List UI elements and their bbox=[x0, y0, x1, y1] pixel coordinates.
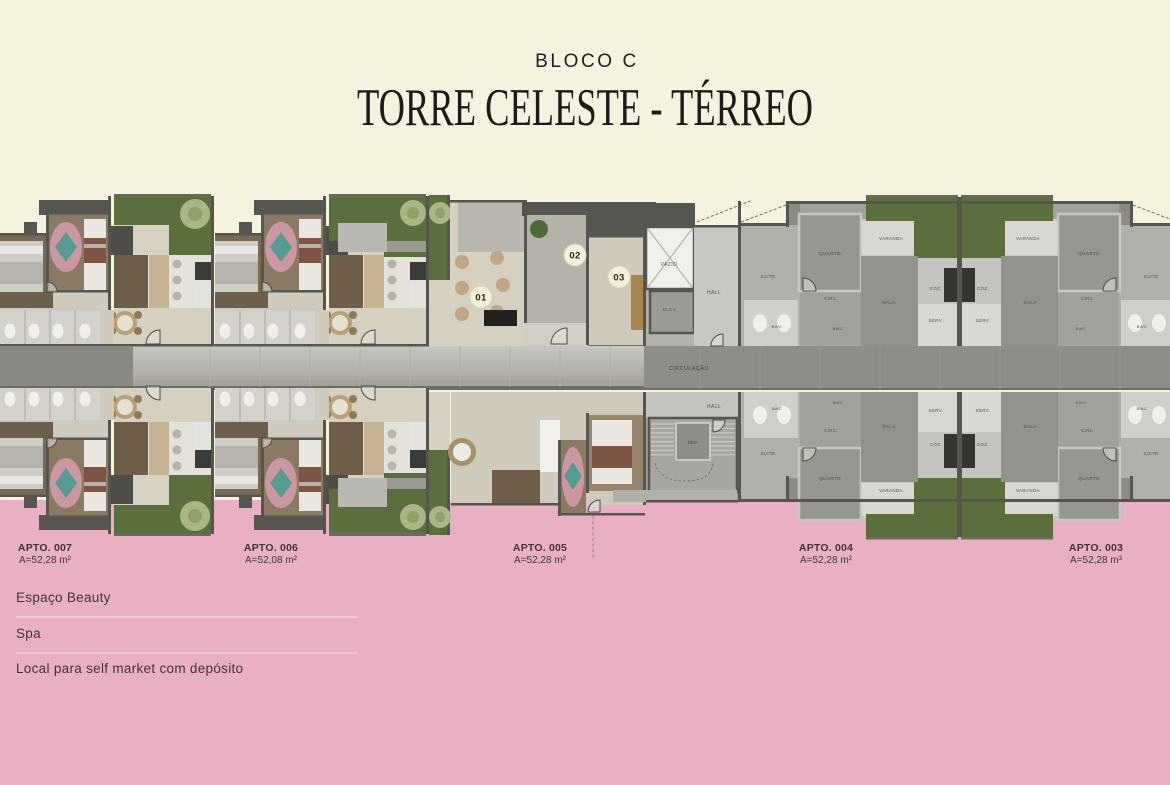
svg-text:COZ.: COZ. bbox=[930, 286, 942, 291]
svg-text:03: 03 bbox=[613, 273, 624, 284]
svg-text:SALA: SALA bbox=[882, 300, 896, 305]
svg-text:COZ.: COZ. bbox=[977, 286, 989, 291]
svg-text:BWC: BWC bbox=[1137, 406, 1148, 411]
svg-text:VAZIO: VAZIO bbox=[661, 262, 678, 268]
svg-text:CIRC.: CIRC. bbox=[1081, 296, 1094, 301]
svg-text:VARANDA: VARANDA bbox=[879, 236, 903, 241]
svg-text:SUITE: SUITE bbox=[761, 451, 776, 456]
svg-text:CIRC.: CIRC. bbox=[824, 428, 837, 433]
svg-text:HALL: HALL bbox=[707, 404, 721, 410]
svg-text:DEP.: DEP. bbox=[688, 440, 699, 445]
svg-text:CIRC.: CIRC. bbox=[1081, 428, 1094, 433]
svg-text:SERV.: SERV. bbox=[976, 408, 991, 413]
svg-text:TORRE CELESTE - TÉRREO: TORRE CELESTE - TÉRREO bbox=[357, 79, 813, 137]
svg-text:QUARTO: QUARTO bbox=[819, 476, 841, 481]
svg-text:BWC: BWC bbox=[1137, 324, 1148, 329]
svg-text:SUITE: SUITE bbox=[761, 274, 776, 279]
svg-text:COZ.: COZ. bbox=[977, 442, 989, 447]
svg-text:SERV.: SERV. bbox=[929, 318, 944, 323]
svg-text:BWC: BWC bbox=[1076, 400, 1087, 405]
svg-text:SERV.: SERV. bbox=[976, 318, 991, 323]
svg-text:SUITE: SUITE bbox=[1144, 451, 1159, 456]
svg-text:SALA: SALA bbox=[882, 424, 896, 429]
svg-text:QUARTO: QUARTO bbox=[1078, 251, 1100, 256]
svg-text:BWC: BWC bbox=[772, 406, 783, 411]
svg-text:SALA: SALA bbox=[1023, 300, 1037, 305]
svg-text:02: 02 bbox=[569, 251, 580, 262]
svg-text:QUARTO: QUARTO bbox=[819, 251, 841, 256]
svg-text:BWC: BWC bbox=[833, 400, 844, 405]
svg-text:ELEV.: ELEV. bbox=[663, 307, 678, 312]
svg-text:QUARTO: QUARTO bbox=[1078, 476, 1100, 481]
svg-text:BWC: BWC bbox=[1076, 326, 1087, 331]
svg-text:CIRC.: CIRC. bbox=[824, 296, 837, 301]
svg-text:SALA: SALA bbox=[1023, 424, 1037, 429]
svg-text:SERV.: SERV. bbox=[929, 408, 944, 413]
svg-text:COZ.: COZ. bbox=[930, 442, 942, 447]
svg-text:HALL: HALL bbox=[707, 290, 721, 296]
svg-text:BWC: BWC bbox=[772, 324, 783, 329]
svg-text:VARANDA: VARANDA bbox=[1016, 236, 1040, 241]
svg-text:VARANDA: VARANDA bbox=[879, 488, 903, 493]
svg-text:SUITE: SUITE bbox=[1144, 274, 1159, 279]
svg-text:01: 01 bbox=[475, 293, 487, 304]
svg-text:BWC: BWC bbox=[833, 326, 844, 331]
svg-text:CIRCULAÇÃO: CIRCULAÇÃO bbox=[669, 365, 709, 372]
svg-text:VARANDA: VARANDA bbox=[1016, 488, 1040, 493]
